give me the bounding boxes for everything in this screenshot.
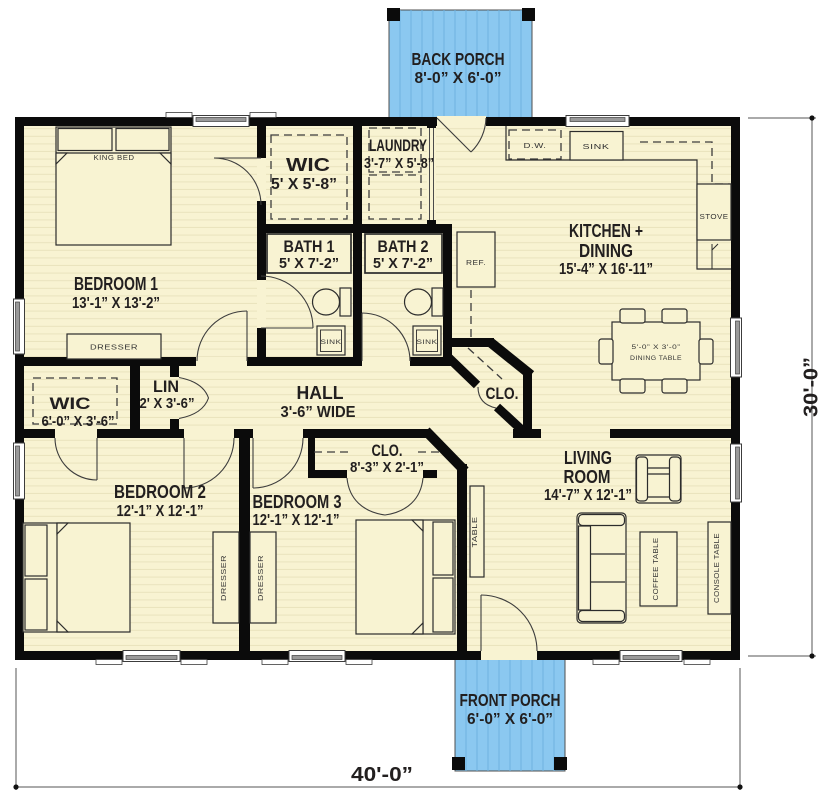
svg-text:5' X 5'-8”: 5' X 5'-8” [271,176,337,193]
svg-text:3'-6” WIDE: 3'-6” WIDE [281,404,356,421]
svg-text:DRESSER: DRESSER [219,555,228,601]
svg-text:BEDROOM 2: BEDROOM 2 [114,482,206,502]
svg-text:BATH 1: BATH 1 [284,238,335,256]
svg-text:DRESSER: DRESSER [90,343,138,352]
svg-text:WIC: WIC [286,155,330,175]
svg-text:15'-4” X 16'-11”: 15'-4” X 16'-11” [559,261,653,278]
svg-text:TABLE: TABLE [472,517,479,548]
svg-text:WIC: WIC [50,395,91,413]
svg-text:13'-1” X 13'-2”: 13'-1” X 13'-2” [72,295,160,312]
svg-text:LIN: LIN [153,378,179,396]
svg-text:DINING TABLE: DINING TABLE [630,355,682,362]
svg-text:COFFEE TABLE: COFFEE TABLE [653,538,660,601]
svg-text:CONSOLE TABLE: CONSOLE TABLE [714,533,721,603]
svg-text:SINK: SINK [321,339,342,346]
svg-text:6'-0” X 3'-6”: 6'-0” X 3'-6” [42,414,115,430]
svg-text:HALL: HALL [297,383,344,403]
svg-text:8'-0” X 6'-0”: 8'-0” X 6'-0” [415,70,502,87]
svg-text:6'-0” X 6'-0”: 6'-0” X 6'-0” [467,711,553,728]
svg-text:2' X 3'-6”: 2' X 3'-6” [140,396,195,412]
svg-text:KING BED: KING BED [94,155,135,162]
svg-text:ROOM: ROOM [564,467,611,487]
svg-text:40'-0”: 40'-0” [351,764,413,786]
svg-text:DRESSER: DRESSER [256,555,265,601]
svg-text:8'-3” X 2'-1”: 8'-3” X 2'-1” [350,460,424,476]
svg-text:5'-0” X 3'-0”: 5'-0” X 3'-0” [632,344,681,351]
svg-text:DINING: DINING [579,241,633,261]
svg-text:BEDROOM 3: BEDROOM 3 [253,492,342,512]
svg-text:5' X 7'-2”: 5' X 7'-2” [279,256,339,272]
svg-text:30'-0”: 30'-0” [801,357,823,417]
svg-text:12'-1” X 12'-1”: 12'-1” X 12'-1” [253,512,340,529]
svg-text:3'-7” X 5'-8”: 3'-7” X 5'-8” [364,155,434,172]
svg-text:KITCHEN +: KITCHEN + [569,221,643,241]
svg-text:14'-7” X 12'-1”: 14'-7” X 12'-1” [544,487,632,504]
svg-text:BACK PORCH: BACK PORCH [412,49,505,69]
svg-text:REF.: REF. [466,260,486,267]
svg-text:5' X 7'-2”: 5' X 7'-2” [373,256,433,272]
svg-text:BEDROOM 1: BEDROOM 1 [74,274,158,294]
svg-text:BATH 2: BATH 2 [378,238,429,256]
svg-text:LIVING: LIVING [564,448,612,468]
svg-text:LAUNDRY: LAUNDRY [369,136,427,155]
svg-text:CLO.: CLO. [372,442,403,460]
svg-text:FRONT PORCH: FRONT PORCH [460,690,561,710]
svg-text:CLO.: CLO. [486,385,519,403]
svg-text:12'-1” X 12'-1”: 12'-1” X 12'-1” [117,503,204,520]
svg-text:D.W.: D.W. [524,143,547,150]
svg-text:STOVE: STOVE [700,212,729,221]
svg-text:SINK: SINK [583,142,610,151]
svg-text:SINK: SINK [417,339,438,346]
